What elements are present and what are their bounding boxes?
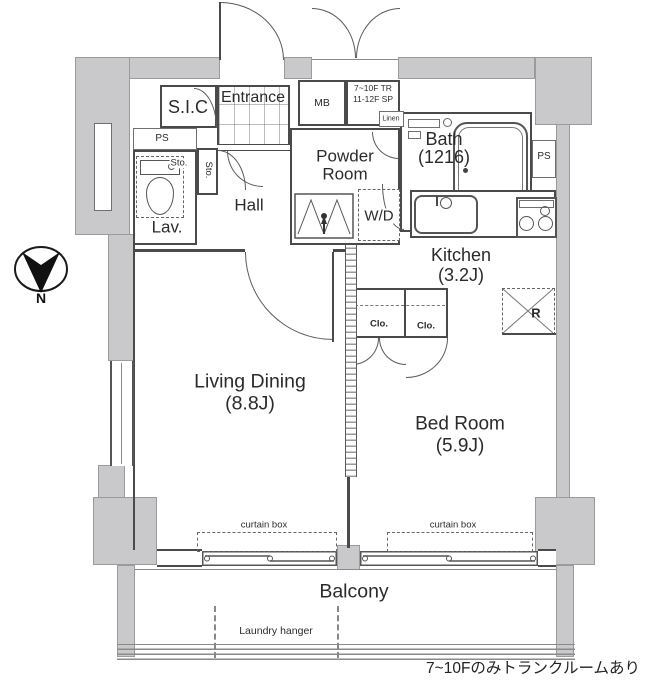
label-kitchen-size: (3.2J)	[438, 266, 484, 284]
label-living-size: (8.8J)	[225, 394, 275, 414]
closet-shelf-line	[355, 305, 445, 306]
balcony-top-line	[135, 569, 556, 570]
label-sto-top: Sto.	[170, 158, 189, 168]
label-bath-size: (1216)	[418, 148, 470, 166]
wall-top-right-block	[535, 57, 592, 125]
wall-top-mid	[284, 57, 312, 79]
wall-left-low	[98, 465, 125, 499]
label-trunk-line1: 7~10F TR	[354, 84, 392, 93]
pillar-bottom-left	[93, 497, 157, 565]
stove-burner-right	[538, 216, 553, 231]
label-lav: Lav.	[152, 219, 183, 236]
wall-right	[556, 124, 570, 498]
living-door-arc	[245, 252, 333, 340]
label-balcony: Balcony	[319, 582, 388, 602]
bath-faucet-icon	[443, 118, 452, 127]
trunk-door-arc-left	[312, 8, 356, 58]
living-side-window	[110, 361, 134, 466]
wall-living-top-left	[135, 249, 245, 252]
kitchen-faucet-icon	[440, 197, 452, 209]
living-partition-hatch	[345, 245, 357, 477]
washbasin-icon	[294, 190, 356, 242]
laundry-hanger-line-left	[214, 606, 216, 658]
wall-left-mid	[108, 234, 135, 361]
bathtub-drain-dot	[463, 168, 468, 173]
living-door-leaf	[332, 252, 334, 342]
wall-top-right	[398, 57, 535, 79]
laundry-hanger-line-right	[337, 606, 339, 658]
stove-burner-left	[519, 216, 534, 231]
floor-plan: N S.I.C Entrance MB 7~10F TR 11-12F SP L…	[0, 0, 649, 688]
trunk-room-note: 7~10Fのみトランクルームあり	[330, 656, 640, 678]
label-sto-side: Sto.	[203, 162, 213, 179]
label-powder-line2: Room	[322, 166, 367, 183]
entrance-door-arc	[220, 2, 284, 60]
label-hall: Hall	[234, 197, 263, 214]
trunk-door-arc-right	[356, 8, 400, 58]
kitchen-faucet-stub	[436, 196, 438, 206]
label-clo-right: Clo.	[417, 321, 435, 331]
label-bedroom-name: Bed Room	[415, 415, 505, 434]
label-wd: W/D	[362, 209, 395, 224]
label-entrance: Entrance	[221, 90, 285, 106]
label-kitchen-name: Kitchen	[431, 246, 491, 264]
entrance-step-line	[217, 144, 290, 151]
bath-counter-icon	[408, 119, 440, 128]
label-ps-right: PS	[537, 152, 550, 162]
label-curtain-left: curtain box	[239, 520, 289, 530]
thin-wall-bl	[157, 549, 202, 567]
label-sic: S.I.C	[168, 98, 208, 116]
closet-door-arc-2	[379, 338, 406, 365]
thin-wall-br	[538, 549, 556, 567]
label-mb: MB	[314, 98, 330, 109]
label-bath-name: Bath	[425, 130, 462, 148]
compass-n-label: N	[36, 290, 46, 305]
label-clo-left: Clo.	[370, 319, 388, 329]
closet-door-arc-3	[406, 338, 448, 378]
bedroom-balcony-window	[360, 551, 538, 566]
label-living-name: Living Dining	[194, 372, 306, 392]
bath-shower-icon	[408, 131, 421, 139]
label-curtain-right: curtain box	[428, 520, 478, 530]
stove-burner-small	[540, 206, 550, 216]
living-side-window-rail	[121, 363, 122, 464]
label-bedroom-size: (5.9J)	[436, 437, 485, 456]
curtain-box-right	[387, 532, 533, 552]
label-fridge: R	[531, 307, 540, 320]
compass: N	[13, 243, 71, 305]
entrance-door-leaf	[219, 2, 221, 60]
label-trunk-line2: 11-12F SP	[353, 95, 393, 104]
left-wall-window-inset	[94, 123, 112, 211]
wall-partition-lower	[347, 477, 350, 548]
pier-bottom-center	[337, 545, 360, 570]
label-laundry-hanger: Laundry hanger	[239, 626, 313, 637]
label-ps-left: PS	[155, 134, 168, 144]
curtain-box-left	[197, 532, 337, 552]
living-balcony-window	[202, 551, 337, 566]
trunk-opening-line	[312, 59, 398, 60]
closet-divider	[404, 288, 406, 338]
label-linen: Linen	[382, 116, 399, 123]
fridge-space	[502, 288, 555, 335]
label-powder-line1: Powder	[316, 148, 374, 165]
wall-below-fridge	[502, 333, 556, 335]
